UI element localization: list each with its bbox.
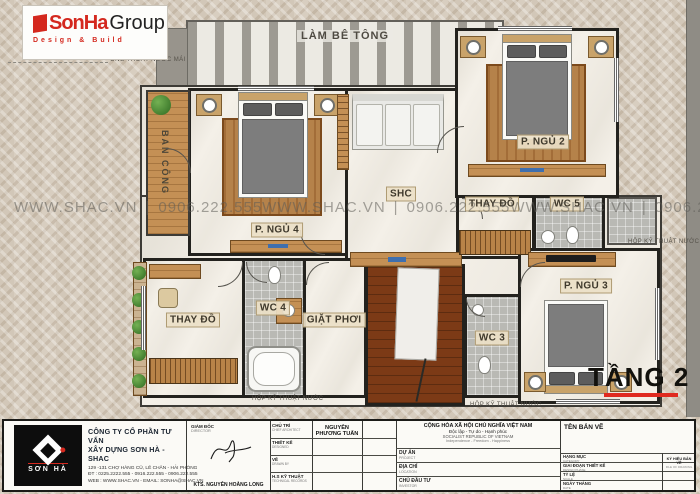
staff-row-label: CHỦ TRÌ CHIEF ARCHITECT — [272, 423, 301, 432]
room-label-shc: SHC — [386, 187, 416, 202]
national-header: CỘNG HÒA XÃ HỘI CHỦ NGHĨA VIỆT NAM Độc l… — [396, 421, 560, 490]
project-row-label: DỰ ÁN PROJECT — [399, 450, 415, 460]
company-name-line2: XÂY DỰNG SƠN HÀ - SHAC — [88, 445, 184, 463]
annotation-water-box: HỘP KỸ THUẬT NƯỚC — [252, 396, 323, 402]
bed-pillows — [503, 43, 571, 58]
company-web: WEB : WWW.SHAC.VN - EMAIL: SONHA@SHAC.VN — [88, 479, 184, 485]
window-symbol — [614, 58, 619, 122]
brand-logo: SonHa Group Design & Build — [22, 5, 168, 60]
director-name: KTS. NGUYỄN HOÀNG LONG — [187, 482, 270, 488]
room-label-lam-be-tong: LÀM BÊ TÔNG — [297, 30, 393, 42]
bed-symbol — [238, 92, 308, 198]
toilet-symbol — [566, 226, 579, 244]
drawing-row-label: TỶ LỆ SCALE — [563, 472, 575, 481]
room-label-thay-do-bottom: THAY ĐỒ — [166, 313, 220, 328]
sink-symbol — [541, 230, 555, 244]
console-table-symbol — [350, 252, 462, 267]
bed-symbol — [502, 34, 572, 140]
room-label-giat-phoi: GIẶT PHƠI — [303, 313, 366, 328]
plant-symbol — [151, 95, 171, 115]
bed-pillows — [239, 101, 307, 116]
utility-shaft — [607, 197, 657, 245]
wardrobe-symbol — [459, 230, 531, 255]
chair-symbol — [158, 288, 178, 308]
room-label-wc-3: WC 3 — [475, 331, 509, 346]
drawing-row-label: NGÀY THÁNG DATE — [563, 481, 591, 490]
wardrobe-symbol — [149, 358, 238, 384]
brand-name-black: Group — [109, 12, 165, 35]
plant-symbol — [132, 374, 146, 388]
drawing-row-label: HẠNG MỤC CATEGORY — [563, 454, 586, 463]
room-label-wc-5: WC 5 — [550, 197, 584, 212]
drawing-code-box: KÝ HIỆU BẢN VẼ FILE OF DRAWING — [664, 457, 694, 469]
wardrobe-ladder-symbol — [337, 94, 349, 170]
bathtub-symbol — [247, 346, 301, 392]
window-symbol — [141, 286, 146, 350]
director-label-en: DIRECTOR — [191, 429, 270, 433]
sofa-symbol — [352, 94, 444, 150]
company-phone: ĐT : 0225.2222.555 - 0916.222.555 - 0906… — [88, 472, 184, 478]
bed-blanket — [506, 61, 568, 136]
leader-line — [8, 62, 108, 63]
room-label-wc-4: WC 4 — [256, 301, 290, 316]
annotation-water-box: HỘP KỸ THUẬT NƯỚC — [628, 239, 699, 245]
company-info: CÔNG TY CỔ PHẦN TƯ VẤN XÂY DỰNG SƠN HÀ -… — [88, 427, 184, 485]
drawing-title-label: TÊN BẢN VẼ — [564, 424, 603, 431]
tv-symbol — [546, 255, 596, 262]
room-label-bedroom-4: P. NGỦ 4 — [251, 223, 303, 238]
company-logo: SƠN HÀ — [14, 425, 82, 486]
lamp-icon — [528, 375, 543, 390]
drawing-row-label: GIAI ĐOẠN THIẾT KẾ DESIGN PHASE — [563, 463, 605, 472]
lamp-icon — [594, 40, 609, 55]
stair-landing — [394, 267, 439, 360]
nightstand-symbol — [524, 372, 546, 392]
window-symbol — [556, 399, 620, 404]
room-label-bedroom-2: P. NGỦ 2 — [517, 135, 569, 150]
brand-name-red: SonHa — [49, 12, 107, 35]
nightstand-symbol — [588, 36, 614, 58]
signature — [205, 435, 255, 463]
decor-symbol — [520, 168, 544, 172]
staff-row-label: THIẾT KẾ DESIGNED — [272, 440, 293, 449]
sonha-emblem-icon — [33, 14, 47, 33]
window-symbol — [498, 26, 572, 31]
title-block: SƠN HÀ CÔNG TY CỔ PHẦN TƯ VẤN XÂY DỰNG S… — [2, 419, 696, 492]
drawing-cell: TÊN BẢN VẼ HẠNG MỤC CATEGORY GIAI ĐOẠN T… — [560, 421, 694, 490]
bed-headboard — [503, 35, 571, 43]
annotation-water-box: HỘP KỸ THUẬT NƯỚC — [470, 402, 541, 408]
plant-symbol — [132, 266, 146, 280]
lamp-icon — [320, 98, 335, 113]
room-label-thay-do-top: THAY ĐỒ — [465, 197, 519, 212]
room-label-bedroom-3: P. NGỦ 3 — [560, 279, 612, 294]
bed-blanket — [242, 119, 304, 194]
nightstand-symbol — [196, 94, 222, 116]
director-cell: GIÁM ĐỐC DIRECTOR KTS. NGUYỄN HOÀNG LONG — [187, 421, 270, 490]
decor-symbol — [268, 244, 288, 248]
staff-row-label: VẼ DRAWN BY — [272, 457, 289, 466]
nightstand-symbol — [460, 36, 486, 58]
brand-tagline: Design & Build — [33, 37, 167, 44]
shelf-symbol — [149, 264, 201, 279]
project-row-label: CHỦ ĐẦU TƯ INVESTOR — [399, 478, 431, 488]
floor-label: TẦNG 2 — [588, 362, 689, 393]
lamp-icon — [466, 40, 481, 55]
staff-table: CHỦ TRÌ CHIEF ARCHITECT NGUYỄN PHƯƠNG TU… — [270, 421, 396, 490]
staff-row-value: NGUYỄN PHƯƠNG TUẤN — [314, 425, 360, 437]
window-symbol — [238, 86, 314, 91]
bed-blanket — [548, 304, 604, 367]
toilet-symbol — [268, 266, 281, 284]
decor-symbol — [388, 257, 406, 262]
bed-headboard — [239, 93, 307, 101]
toilet-symbol — [478, 356, 491, 374]
project-row-label: ĐỊA CHỈ LOCATION — [399, 464, 417, 474]
staff-row-label: H.S KỸ THUẬT TECHNICAL RECORDS — [272, 474, 307, 483]
company-name-line1: CÔNG TY CỔ PHẦN TƯ VẤN — [88, 427, 184, 445]
window-symbol — [655, 288, 660, 360]
floor-label-underline — [604, 393, 678, 397]
sonha-diamond-icon — [32, 434, 63, 465]
roof-strip-right — [686, 0, 700, 417]
floorplan-sheet: SonHa Group Design & Build ỐNG THOÁT NƯỚ… — [0, 0, 700, 494]
lamp-icon — [202, 98, 217, 113]
